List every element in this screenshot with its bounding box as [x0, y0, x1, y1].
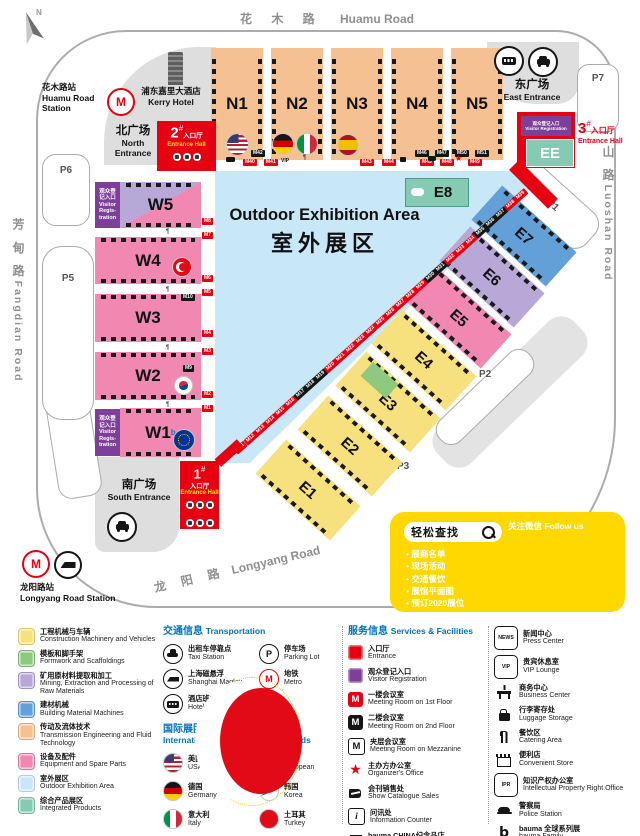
wechat-promo-box: 轻松查找 关注微信 Follow us 展商名单现场活动交通餐饮展馆平面图预订2… — [390, 512, 625, 612]
facility-item: 餐饮区Catering Area — [494, 728, 636, 746]
facility-item: IPR 知识产权办公室Intellectual Property Right O… — [494, 773, 636, 797]
usa-flag-icon — [226, 133, 249, 156]
entrance-3-label: 3#入口厅 Entrance Hall — [578, 120, 623, 145]
promo-bullet: 展馆平面图 — [406, 585, 464, 597]
category-color-swatch — [18, 672, 35, 689]
info-mini-icon — [196, 501, 204, 509]
transport-item: 出租车停靠点Taxi Station — [163, 644, 259, 664]
entrance-1-hall: 1# 入口厅 Entrance Hall — [180, 461, 219, 529]
hall-e8: E8 — [405, 178, 469, 207]
entrance-2-hall: 2#入口厅 Entrance Hall — [157, 121, 216, 171]
promo-bullet: 预订2020展位 — [406, 597, 464, 609]
search-pill: 轻松查找 — [404, 522, 502, 542]
legend-divider — [488, 626, 489, 824]
intl-flag-item: 意大利Italy — [163, 809, 259, 829]
catalogue-mini-icon — [196, 519, 204, 527]
hall-w2: W2 — [95, 352, 201, 400]
hall-n1: N1 — [211, 48, 263, 160]
promo-bullet: 展商名单 — [406, 548, 464, 560]
gate-label: M46 — [415, 150, 429, 157]
promo-bullet-list: 展商名单现场活动交通餐饮展馆平面图预订2020展位 — [406, 548, 464, 610]
outdoor-area-title-en: Outdoor Exhibition Area — [222, 206, 427, 225]
organizer-star-icon: ★ — [455, 154, 462, 163]
shuttle-bus-icon — [494, 46, 524, 76]
catalogue-icon — [173, 153, 181, 161]
huamu-road-label-cn: 花 木 路 — [240, 10, 323, 27]
compass: N — [16, 8, 50, 52]
parking-p5: P5 — [42, 246, 94, 420]
service-icon — [348, 668, 363, 683]
facility-icon — [494, 728, 514, 746]
gate-label: M5 — [202, 289, 213, 296]
maglev-train-icon — [54, 551, 82, 579]
metro-icon: M — [107, 88, 135, 116]
vip-mini-icon — [186, 501, 194, 509]
north-entrance-label: 北广场 North Entrance — [104, 122, 162, 158]
facility-item: 便利店Convenient Store — [494, 751, 636, 769]
compass-arrow-icon — [11, 4, 52, 51]
catering-mark-icon — [128, 183, 131, 189]
south-entrance-plaza — [95, 457, 179, 552]
entrance-1-service-icons-row1 — [180, 497, 219, 515]
vip-gate-label: VIP — [281, 158, 289, 164]
hall-w1: W1b — [120, 408, 201, 457]
taxi-icon — [528, 47, 558, 77]
country-flag-icon — [163, 809, 183, 829]
service-item: M 一楼会议室Meeting Room on 1st Floor — [348, 691, 484, 707]
service-item: i 问讯处Information Counter — [348, 808, 484, 825]
hall-n3: N3 — [331, 48, 383, 160]
parking-p2: P2 — [479, 369, 491, 380]
service-icon: M — [348, 715, 363, 730]
hall-w4: W4 — [95, 237, 201, 284]
legend-category-item: 建材机械Building Material Machines — [18, 701, 158, 718]
category-color-swatch — [18, 753, 35, 770]
outdoor-area-title-cn: 室外展区 — [235, 226, 415, 258]
visitor-registration-east: 观众登记入口Visitor Registration — [521, 116, 571, 136]
hall-ee: EE — [526, 139, 574, 167]
spain-flag-icon — [337, 134, 359, 156]
gate-label: M40 — [243, 159, 257, 166]
site-map: N 花 木 路 Huamu Road 罗 山 路Luoshan Road 芳 甸… — [0, 0, 640, 620]
facility-icon — [494, 751, 514, 769]
legend-categories: 工程机械与车辆Construction Machinery and Vehicl… — [18, 628, 158, 819]
venue-map-page: N 花 木 路 Huamu Road 罗 山 路Luoshan Road 芳 甸… — [0, 0, 640, 836]
service-item: M 夹层会议室Meeting Room on Mezzanine — [348, 738, 484, 755]
service-items: 入口厅Entrance 观众登记入口Visitor Registration M… — [348, 645, 484, 836]
gate-label: M44 — [382, 159, 396, 166]
service-item: 观众登记入口Visitor Registration — [348, 668, 484, 684]
gate-label: M6 — [202, 275, 213, 282]
service-icon: ★ — [348, 762, 363, 777]
kerry-hotel-icon — [168, 52, 183, 85]
service-icon — [348, 645, 363, 660]
facility-icon — [494, 706, 514, 724]
gate-label: M49 — [468, 159, 482, 166]
legend-category-item: 传动及流体技术Transmission Engineering and Flui… — [18, 723, 158, 747]
legend-facilities: NEWS 新闻中心Press Center VIP 贵宾休息室VIP Loung… — [494, 626, 636, 836]
follow-us-label: 关注微信 Follow us — [508, 520, 584, 532]
category-color-swatch — [18, 701, 35, 718]
gate-label: M4 — [202, 330, 213, 337]
facility-icon: VIP — [494, 655, 518, 679]
gate-label: M3 — [202, 348, 213, 355]
catering-mark-icon — [166, 287, 169, 293]
legend-category-item: 工程机械与车辆Construction Machinery and Vehicl… — [18, 628, 158, 645]
legend-category-item: 综合产品展区Integrated Products — [18, 797, 158, 814]
catalogue-mark-icon — [428, 156, 436, 161]
transport-icon: P — [259, 644, 279, 664]
gate-label: M41 — [264, 159, 278, 166]
service-item: 会刊销售处Show Catalogue Sales — [348, 785, 484, 801]
fangdian-road-label: 芳 甸 路Fangdian Road — [10, 218, 27, 383]
facility-item: b bauma 全球系列展bauma Family — [494, 824, 636, 836]
facility-icon: IPR — [494, 773, 518, 797]
hall-n2: N2 — [271, 48, 323, 160]
korea-flag-icon — [174, 376, 193, 395]
country-flag-icon — [163, 753, 183, 773]
gate-label: M1 — [202, 405, 213, 412]
category-color-swatch — [18, 628, 35, 645]
legend-category-item: 设备及配件Equipment and Spare Parts — [18, 753, 158, 770]
longyang-station-label: 龙阳路站 Longyang Road Station — [20, 582, 140, 604]
search-icon — [482, 526, 495, 539]
shuttle-mark-icon — [226, 157, 235, 162]
gate-label: M8 — [202, 218, 213, 225]
legend-transport: 交通信息 Transportation 出租车停靠点Taxi Station P… — [163, 626, 341, 836]
metro-mini-icon — [183, 153, 191, 161]
facility-item: 行李寄存处Luggage Storage — [494, 706, 636, 724]
category-color-swatch — [18, 650, 35, 667]
promo-bullet: 交通餐饮 — [406, 573, 464, 585]
facility-item: 警察局Police Station — [494, 802, 636, 820]
service-item: 入口厅Entrance — [348, 645, 484, 661]
catering-mini-icon — [206, 519, 214, 527]
intl-flag-item: 土耳其Turkey — [259, 809, 341, 829]
catering-mark-icon — [166, 345, 169, 351]
service-icon: M — [348, 738, 365, 755]
gate-label: M48 — [440, 159, 454, 166]
facility-icon: NEWS — [494, 626, 518, 650]
search-label: 轻松查找 — [411, 524, 459, 540]
service-item: ★ 主办方办公室Organizer's Office — [348, 762, 484, 778]
gate-label: M2 — [202, 391, 213, 398]
facility-item: VIP 贵宾休息室VIP Lounge — [494, 655, 636, 679]
entrance-2-service-icons — [157, 149, 216, 167]
entrance-1-service-icons-row2 — [180, 515, 219, 533]
italy-flag-icon — [296, 133, 318, 155]
category-color-swatch — [18, 723, 35, 740]
huamu-station-label: 花木路站 Huamu Road Station — [42, 82, 106, 114]
facility-icon — [494, 683, 514, 701]
kerry-hotel-label: 浦东嘉里大酒店 Kerry Hotel — [128, 86, 214, 107]
transport-item: P 停车场Parking Lot — [259, 644, 341, 664]
gate-label: M47 — [435, 150, 449, 157]
catering-mark-icon — [166, 402, 169, 408]
transport-icon — [163, 644, 183, 664]
hall-w5: W5 — [120, 182, 201, 228]
meeting-mini-icon — [186, 519, 194, 527]
legend-category-item: 室外展区Outdoor Exhibition Area — [18, 775, 158, 792]
transport-icon — [163, 694, 183, 714]
country-flag-icon — [163, 781, 183, 801]
metro-icon: M — [22, 550, 50, 578]
legend-services: 服务信息 Services & Facilities 入口厅Entrance 观… — [348, 626, 484, 836]
gate-label-m9: M9 — [183, 365, 194, 372]
visitor-registration-w1: 观众登记入口VisitorRegis-tration — [95, 409, 120, 456]
service-icon: M — [348, 692, 363, 707]
service-item: M 二楼会议室Meeting Room on 2nd Floor — [348, 714, 484, 730]
shop-mini-icon — [206, 501, 214, 509]
country-flag-icon — [259, 809, 279, 829]
luoshan-road-label: 罗 山 路Luoshan Road — [600, 122, 617, 282]
service-icon — [348, 786, 363, 801]
catering-mark-icon — [303, 155, 306, 161]
gate-label: M7 — [202, 232, 213, 239]
eu-flag-icon — [173, 429, 195, 451]
promo-bullet: 现场活动 — [406, 560, 464, 572]
legend: 工程机械与车辆Construction Machinery and Vehicl… — [0, 620, 640, 836]
facility-icon: b — [494, 824, 514, 836]
turkey-flag-icon — [172, 257, 192, 277]
facility-items: NEWS 新闻中心Press Center VIP 贵宾休息室VIP Loung… — [494, 626, 636, 836]
taxi-icon — [107, 512, 137, 542]
germany-flag-icon — [272, 133, 294, 155]
facility-icon — [494, 802, 514, 820]
gate-label: M43 — [360, 159, 374, 166]
gate-label: M51 — [475, 150, 489, 157]
category-color-swatch — [18, 775, 35, 792]
hall-n4: N4 — [391, 48, 443, 160]
intl-flag-items: 美国USA 欧盟European 德国Germany 韩国Korea 意大利It… — [163, 753, 341, 836]
service-icon: i — [348, 808, 365, 825]
gate-label-m10: M10 — [181, 294, 195, 301]
transport-icon — [163, 669, 183, 689]
gate-label: M42 — [251, 150, 265, 157]
e8-service-icon — [411, 188, 424, 196]
visitor-registration-w5: 观众登记入口VisitorRegis-tration — [95, 182, 120, 228]
catering-mark-icon — [166, 229, 169, 235]
facility-item: NEWS 新闻中心Press Center — [494, 626, 636, 650]
category-color-swatch — [18, 797, 35, 814]
facility-item: 商务中心Business Center — [494, 683, 636, 701]
legend-divider — [342, 626, 343, 824]
south-entrance-label: 南广场 South Entrance — [100, 476, 178, 502]
vip-mini-icon — [193, 153, 201, 161]
service-item: bauma CHINA纪念品店bauma CHINA Shop — [348, 832, 484, 836]
hall-w3: W3 — [95, 294, 201, 342]
huamu-road-label-en: Huamu Road — [340, 12, 414, 26]
legend-category-item: 矿用原材料提取和加工Mining, Extraction and Process… — [18, 672, 158, 696]
legend-category-item: 模板和脚手架Formwork and Scaffoldings — [18, 650, 158, 667]
parking-p6: P6 — [42, 154, 90, 226]
cart-mark-icon — [400, 157, 406, 162]
